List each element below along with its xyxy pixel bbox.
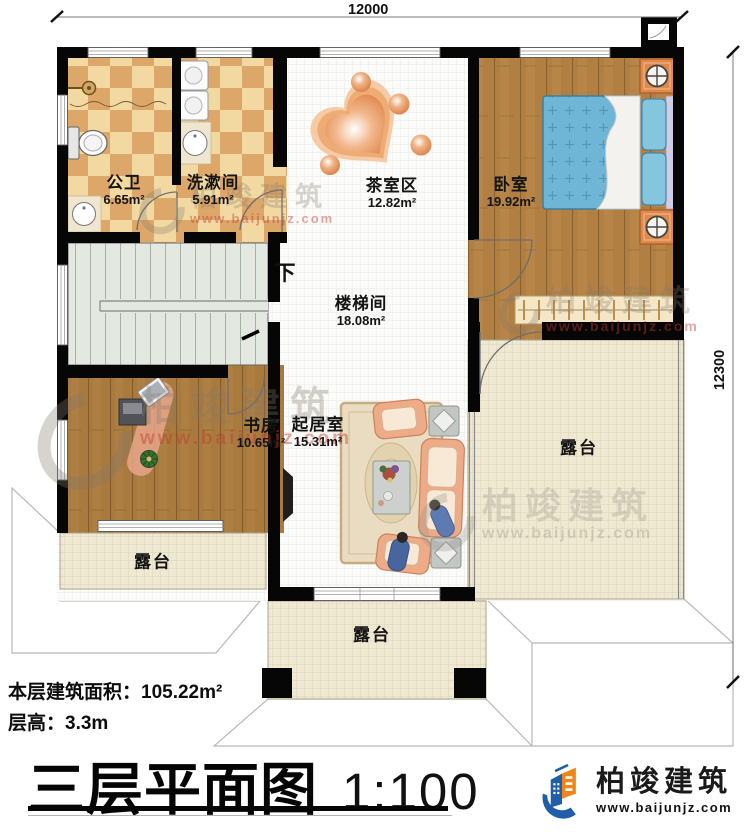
room-name: 卧室	[487, 177, 535, 195]
room-name: 洗漱间	[187, 175, 240, 193]
nightstand-lamp	[640, 59, 674, 93]
room-area: 12.82m²	[366, 196, 419, 210]
logo-url: www.baijunjz.com	[596, 800, 732, 815]
title-underline-thin	[28, 815, 452, 816]
terrace-label: 露台	[560, 434, 598, 459]
room-name: 公卫	[103, 175, 144, 193]
room-label-loutijian: 楼梯间 18.08m²	[335, 296, 388, 328]
title-text: 三层平面图	[28, 758, 318, 822]
room-label-qijushi: 起居室 15.31m²	[292, 417, 345, 449]
room-area: 5.91m²	[187, 193, 240, 207]
title-underline	[28, 806, 448, 811]
room-name: 起居室	[292, 417, 345, 435]
floor-height-note: 层高：3.3m	[8, 708, 108, 735]
title-scale: 1:100	[342, 763, 480, 820]
company-logo-icon	[536, 762, 588, 820]
tv	[283, 468, 293, 522]
room-label-gongwei: 公卫 6.65m²	[103, 175, 144, 207]
logo-brand: 柏竣建筑	[596, 768, 732, 797]
dimension-right: 12300	[712, 350, 728, 390]
floor-area-note: 本层建筑面积：105.22m²	[8, 677, 222, 704]
floor-plan-page: 柏竣建筑 www.baijunjz.com 柏竣建筑 www.baijunjz.…	[0, 0, 750, 835]
room-label-woshi: 卧室 19.92m²	[487, 177, 535, 209]
drawing-title: 三层平面图1:100	[28, 744, 480, 826]
room-area: 19.92m²	[487, 195, 535, 209]
room-name: 书房	[237, 418, 285, 436]
staircase	[68, 243, 268, 365]
dimension-top: 12000	[348, 2, 388, 18]
terrace-label: 露台	[134, 548, 172, 573]
room-area: 18.08m²	[335, 314, 388, 328]
living-room-furniture	[341, 398, 465, 575]
company-logo: 柏竣建筑 www.baijunjz.com	[536, 762, 732, 820]
room-area: 15.31m²	[292, 435, 345, 449]
room-label-chashiqu: 茶室区 12.82m²	[366, 178, 419, 210]
room-area: 6.65m²	[103, 193, 144, 207]
stair-direction-label: 下	[275, 257, 296, 287]
room-area: 10.65m²	[237, 436, 285, 450]
nightstand-lamp	[640, 210, 674, 244]
terrace-label: 露台	[353, 621, 391, 646]
room-label-xishujian: 洗漱间 5.91m²	[187, 175, 240, 207]
room-name: 茶室区	[366, 178, 419, 196]
room-label-shufang: 书房 10.65m²	[237, 418, 285, 450]
room-name: 楼梯间	[335, 296, 388, 314]
floor-plan-graphic	[0, 0, 750, 835]
